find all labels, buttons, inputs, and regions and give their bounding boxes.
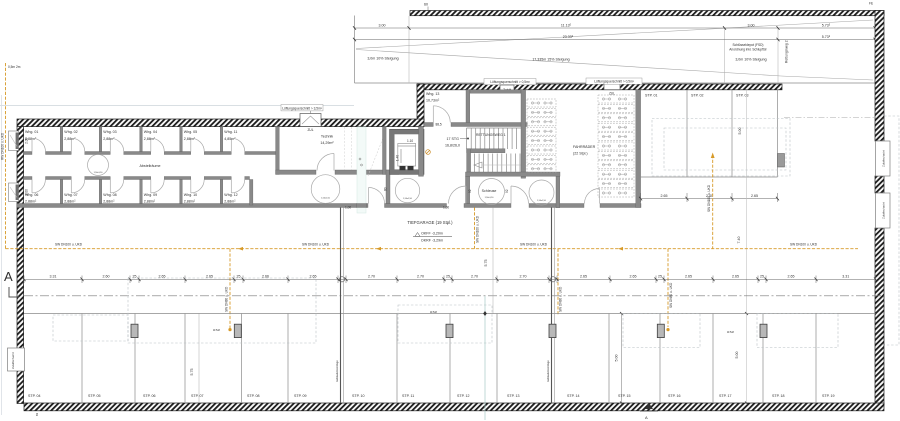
svg-text:2,88m²: 2,88m²: [184, 137, 196, 141]
svg-text:3,0m 10% Steigung: 3,0m 10% Steigung: [735, 58, 766, 62]
svg-text:SW DN100 u. UKD: SW DN100 u. UKD: [707, 184, 711, 212]
svg-text:ZUL: ZUL: [307, 128, 313, 132]
svg-text:Whg. 05: Whg. 05: [184, 130, 197, 134]
svg-text:7.40: 7.40: [737, 237, 741, 244]
svg-text:Lüftungsquerschnitt > 0,5m²: Lüftungsquerschnitt > 0,5m²: [594, 80, 634, 84]
svg-text:Whg. 11: Whg. 11: [224, 130, 237, 134]
svg-text:Zuluftschacht: Zuluftschacht: [11, 352, 15, 369]
svg-text:Whg. 01: Whg. 01: [25, 130, 38, 134]
svg-text:5.73⁵: 5.73⁵: [822, 35, 831, 39]
svg-text:2.70: 2.70: [471, 275, 478, 279]
svg-text:2,88m²: 2,88m²: [64, 200, 76, 204]
svg-text:2.65: 2.65: [630, 275, 637, 279]
svg-text:STP. 19: STP. 19: [822, 394, 835, 398]
svg-text:RETTUNGSWEG 1: RETTUNGSWEG 1: [476, 133, 506, 137]
svg-text:Technik: Technik: [321, 135, 333, 139]
svg-text:Whg. 04: Whg. 04: [144, 130, 157, 134]
svg-text:23.33⁵: 23.33⁵: [563, 35, 574, 39]
svg-text:STP. 09: STP. 09: [294, 394, 307, 398]
svg-text:2.70: 2.70: [417, 275, 424, 279]
svg-text:Zuluftschacht: Zuluftschacht: [882, 150, 886, 167]
svg-text:2.60: 2.60: [103, 275, 110, 279]
svg-text:2,88m²: 2,88m²: [224, 200, 236, 204]
svg-text:3.31: 3.31: [842, 275, 849, 279]
svg-text:(22 Stpl.): (22 Stpl.): [573, 152, 588, 156]
svg-text:A: A: [4, 269, 13, 284]
svg-text:Rettungsweg 2: Rettungsweg 2: [785, 40, 789, 63]
svg-text:1,50x1,50: 1,50x1,50: [403, 198, 413, 200]
svg-text:STP. 17: STP. 17: [719, 394, 732, 398]
svg-text:92: 92: [505, 189, 509, 193]
svg-text:2,88m²: 2,88m²: [144, 200, 156, 204]
svg-text:2.65: 2.65: [788, 275, 795, 279]
svg-text:STP. 18: STP. 18: [772, 394, 785, 398]
svg-text:STP. 05: STP. 05: [88, 394, 101, 398]
svg-text:1,00: 1,00: [345, 206, 351, 210]
svg-text:2.70: 2.70: [368, 275, 375, 279]
svg-text:80: 80: [384, 187, 388, 191]
svg-text:Whg. 08: Whg. 08: [103, 193, 116, 197]
svg-text:STP. 01: STP. 01: [645, 94, 658, 98]
svg-text:1.40: 1.40: [395, 155, 399, 161]
svg-text:92: 92: [468, 189, 472, 193]
svg-text:17,335m 15% Steigung: 17,335m 15% Steigung: [532, 58, 569, 62]
svg-text:2,88m²: 2,88m²: [25, 200, 37, 204]
svg-text:5.00: 5.00: [615, 355, 619, 362]
svg-text:1,50x1,50: 1,50x1,50: [485, 197, 495, 199]
svg-text:SW DN80 u. UKD: SW DN80 u. UKD: [669, 282, 673, 308]
svg-text:Whg. 06: Whg. 06: [25, 193, 38, 197]
svg-text:OKFF -3,20m: OKFF -3,20m: [421, 232, 443, 236]
svg-text:2.65: 2.65: [751, 194, 758, 198]
svg-text:Schleuse: Schleuse: [482, 189, 497, 193]
svg-text:5.00: 5.00: [735, 352, 739, 359]
svg-text:5.73⁵: 5.73⁵: [822, 24, 831, 28]
svg-text:2,88m²: 2,88m²: [103, 137, 115, 141]
svg-text:STP. 10: STP. 10: [352, 394, 365, 398]
svg-text:5.75: 5.75: [190, 369, 194, 376]
svg-text:2.65: 2.65: [732, 275, 739, 279]
svg-text:STP. 16: STP. 16: [668, 394, 681, 398]
svg-text:SW DN80 u. UKD: SW DN80 u. UKD: [225, 286, 229, 312]
svg-text:14,29m²: 14,29m²: [320, 141, 334, 145]
svg-text:88,5: 88,5: [436, 122, 442, 126]
svg-text:SW DN100 u. UKD: SW DN100 u. UKD: [476, 215, 480, 243]
svg-text:3.31: 3.31: [50, 275, 57, 279]
svg-text:25: 25: [446, 275, 450, 279]
svg-text:Zuluftschacht: Zuluftschacht: [882, 202, 886, 219]
svg-text:1.10: 1.10: [407, 139, 413, 143]
svg-text:60: 60: [424, 3, 428, 7]
svg-text:STP. 14: STP. 14: [567, 394, 580, 398]
svg-text:A: A: [645, 415, 648, 420]
svg-text:2,88m²: 2,88m²: [64, 137, 76, 141]
svg-text:0,5m 2m: 0,5m 2m: [8, 65, 21, 69]
svg-text:Whg. 07: Whg. 07: [64, 193, 77, 197]
svg-text:W-5x8: W-5x8: [727, 331, 735, 334]
svg-text:10,73m²: 10,73m²: [426, 99, 440, 103]
svg-text:Lüftungsquerschnitt > 0,5m²: Lüftungsquerschnitt > 0,5m²: [490, 80, 530, 84]
svg-text:25: 25: [760, 275, 764, 279]
svg-text:1,00: 1,00: [443, 206, 449, 210]
svg-text:STP. 04: STP. 04: [28, 394, 41, 398]
svg-text:STP. 08: STP. 08: [247, 394, 260, 398]
svg-text:Schlüsseldepot (FSD): Schlüsseldepot (FSD): [732, 43, 763, 47]
svg-text:B2: B2: [35, 412, 39, 416]
svg-text:2.65: 2.65: [661, 194, 668, 198]
svg-text:17 STG: 17 STG: [447, 137, 460, 141]
svg-text:FAHRRÄDER: FAHRRÄDER: [573, 145, 596, 149]
svg-text:STP. 06: STP. 06: [143, 394, 156, 398]
svg-text:W-5x8: W-5x8: [430, 311, 438, 314]
svg-text:2.70: 2.70: [520, 275, 527, 279]
svg-text:Gebäudetrennfuge: Gebäudetrennfuge: [335, 360, 339, 382]
svg-text:4,85m²: 4,85m²: [224, 137, 236, 141]
svg-text:Whg. 13: Whg. 13: [426, 92, 439, 96]
svg-text:SW DN80 u. UKD: SW DN80 u. UKD: [559, 286, 563, 312]
svg-text:SW DN100 u. UKD: SW DN100 u. UKD: [55, 242, 83, 246]
svg-text:FE: FE: [869, 2, 873, 6]
svg-text:1,50x1,50: 1,50x1,50: [94, 172, 104, 174]
svg-text:SW DN100 u. UKD: SW DN100 u. UKD: [790, 242, 818, 246]
svg-text:3.00: 3.00: [379, 24, 386, 28]
svg-text:2.65: 2.65: [685, 275, 692, 279]
svg-text:25: 25: [658, 275, 662, 279]
svg-text:STP. 13: STP. 13: [507, 394, 520, 398]
svg-text:TIEFGARAGE (19 Stpl.): TIEFGARAGE (19 Stpl.): [407, 220, 453, 225]
svg-text:Whg. 10: Whg. 10: [184, 193, 197, 197]
svg-text:5.00: 5.00: [738, 128, 742, 135]
svg-text:Anordnung inkl. Schlupftür: Anordnung inkl. Schlupftür: [729, 48, 767, 52]
svg-text:11.13⁵: 11.13⁵: [561, 24, 572, 28]
svg-text:Abstellräume: Abstellräume: [140, 164, 161, 168]
svg-text:2.65: 2.65: [580, 275, 587, 279]
svg-text:16,8/26,0: 16,8/26,0: [445, 144, 460, 148]
svg-text:STP. 02: STP. 02: [691, 94, 704, 98]
svg-text:Whg. 09: Whg. 09: [144, 193, 157, 197]
svg-text:Lüftungsquerschnitt > 3,5m²: Lüftungsquerschnitt > 3,5m²: [282, 106, 322, 110]
svg-text:2,88m²: 2,88m²: [25, 137, 37, 141]
svg-text:OKRF -3,29m: OKRF -3,29m: [421, 239, 443, 243]
svg-text:STP. 11: STP. 11: [402, 394, 414, 398]
svg-text:SW DN100 u. UKD: SW DN100 u. UKD: [302, 242, 330, 246]
svg-text:1,50x1,50: 1,50x1,50: [537, 200, 547, 202]
svg-text:RW DN100 u. UKD: RW DN100 u. UKD: [1, 132, 5, 160]
svg-text:3.00: 3.00: [748, 24, 755, 28]
svg-text:STP. 15: STP. 15: [618, 394, 631, 398]
svg-text:W-5x8: W-5x8: [213, 329, 221, 332]
svg-text:STP. 07: STP. 07: [191, 394, 204, 398]
svg-text:5.75: 5.75: [484, 260, 488, 267]
svg-text:Gebäudetrennfuge: Gebäudetrennfuge: [546, 360, 550, 382]
svg-text:Whg. 12: Whg. 12: [224, 193, 237, 197]
svg-text:2,88m²: 2,88m²: [144, 137, 156, 141]
svg-text:3,0m 10% Steigung: 3,0m 10% Steigung: [367, 57, 398, 61]
svg-text:2,88m²: 2,88m²: [103, 200, 115, 204]
svg-text:SW DN100 u. UKD: SW DN100 u. UKD: [520, 242, 548, 246]
svg-text:STP. 12: STP. 12: [457, 394, 470, 398]
svg-text:Whg. 02: Whg. 02: [64, 130, 77, 134]
svg-text:1,50x1,50: 1,50x1,50: [321, 198, 331, 200]
svg-text:2,88m²: 2,88m²: [184, 200, 196, 204]
svg-text:Whg. 03: Whg. 03: [103, 130, 116, 134]
